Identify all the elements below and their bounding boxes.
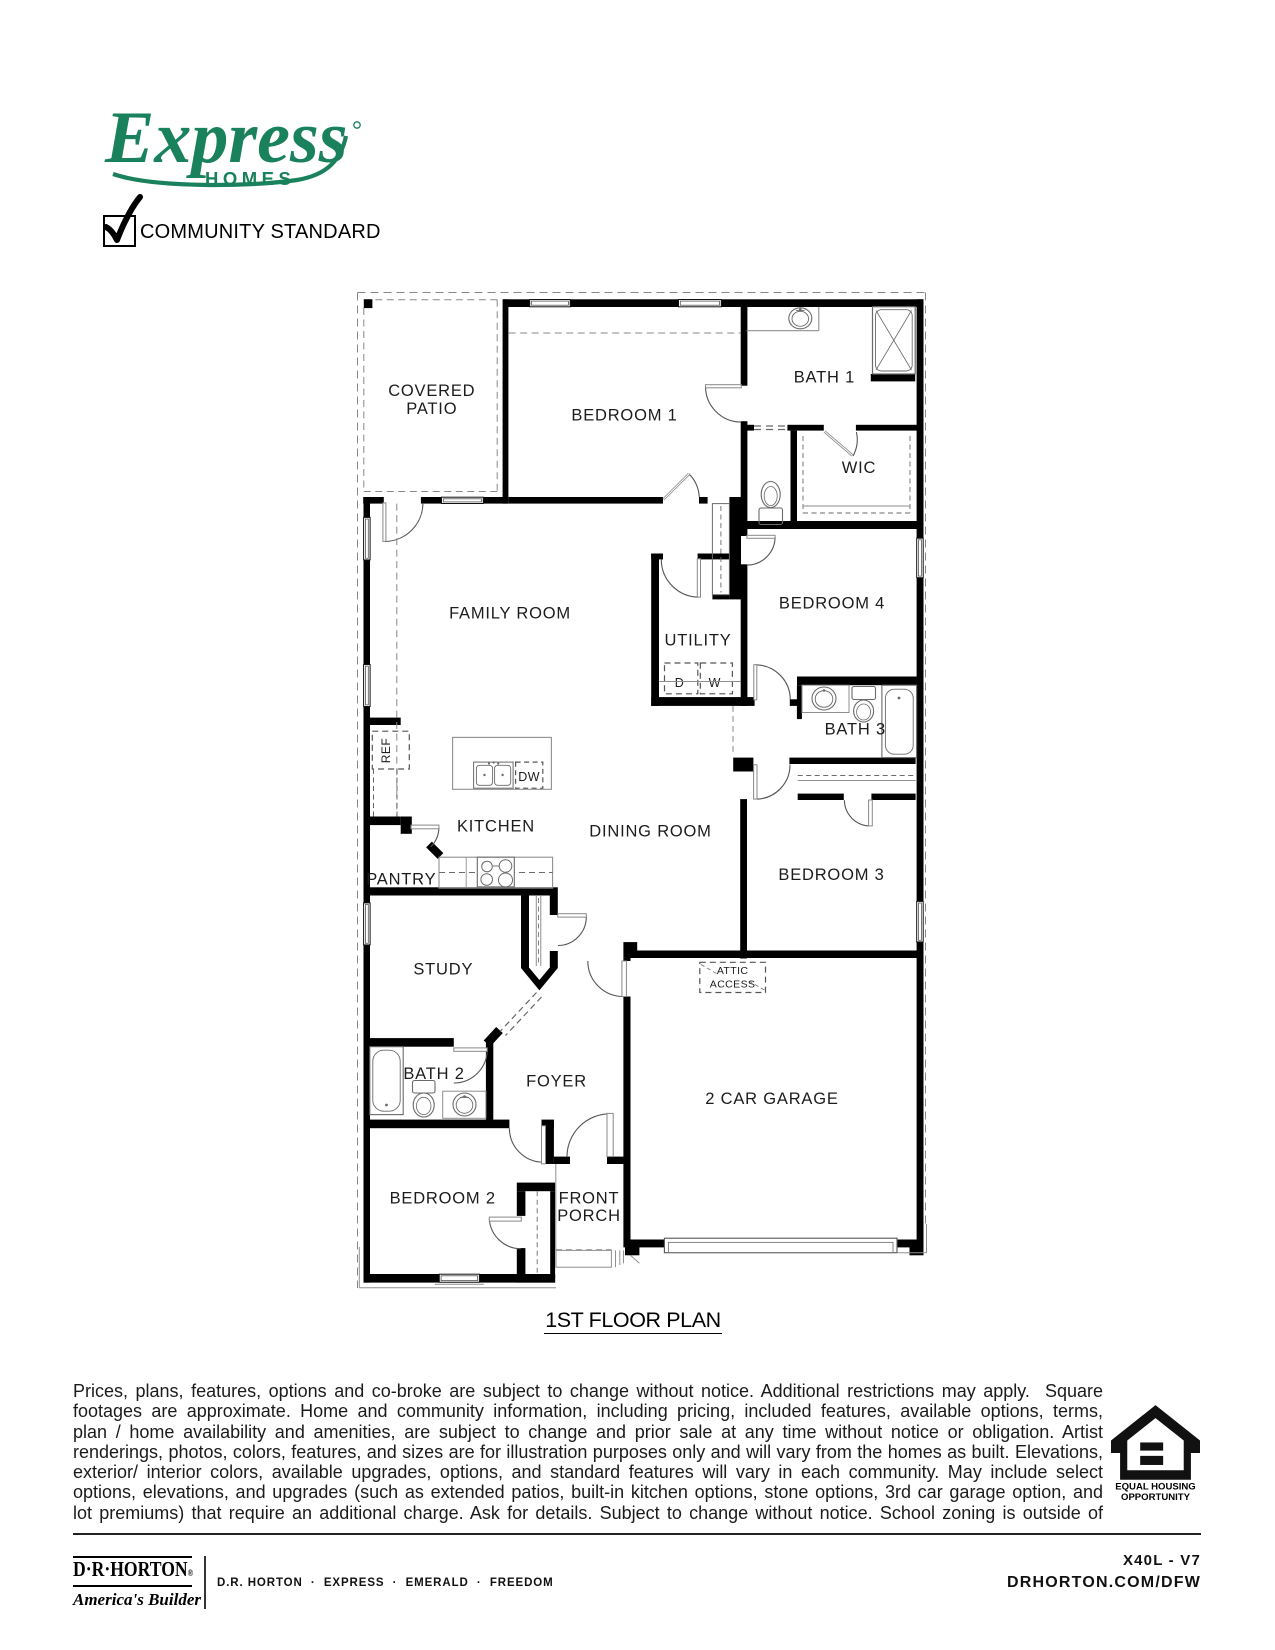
svg-text:PATIO: PATIO <box>406 400 457 418</box>
svg-text:PORCH: PORCH <box>557 1207 621 1225</box>
svg-text:STUDY: STUDY <box>413 961 473 979</box>
svg-text:D: D <box>675 676 685 690</box>
svg-text:WIC: WIC <box>842 459 876 477</box>
svg-text:BEDROOM 1: BEDROOM 1 <box>571 407 677 425</box>
svg-text:2 CAR GARAGE: 2 CAR GARAGE <box>705 1090 838 1108</box>
svg-text:DW: DW <box>518 770 540 784</box>
svg-text:BATH 3: BATH 3 <box>825 721 886 739</box>
svg-text:FRONT: FRONT <box>559 1190 620 1208</box>
svg-text:DINING ROOM: DINING ROOM <box>589 822 711 840</box>
svg-text:COVERED: COVERED <box>388 382 475 400</box>
svg-text:W: W <box>709 676 721 690</box>
svg-text:ACCESS: ACCESS <box>710 979 756 991</box>
svg-text:UTILITY: UTILITY <box>664 632 731 650</box>
svg-text:BATH 2: BATH 2 <box>403 1065 464 1083</box>
svg-text:BEDROOM 4: BEDROOM 4 <box>779 595 885 613</box>
svg-text:KITCHEN: KITCHEN <box>457 817 535 835</box>
svg-text:BATH 1: BATH 1 <box>794 369 855 387</box>
svg-text:EQUAL HOUSING: EQUAL HOUSING <box>1115 1481 1195 1492</box>
svg-text:REF: REF <box>379 738 393 764</box>
svg-text:OPPORTUNITY: OPPORTUNITY <box>1121 1492 1191 1502</box>
svg-text:PANTRY: PANTRY <box>366 870 436 888</box>
svg-text:BEDROOM 2: BEDROOM 2 <box>390 1190 496 1208</box>
svg-text:ATTIC: ATTIC <box>717 965 749 977</box>
svg-text:BEDROOM 3: BEDROOM 3 <box>778 866 884 884</box>
svg-text:FOYER: FOYER <box>526 1073 587 1091</box>
svg-text:FAMILY ROOM: FAMILY ROOM <box>449 605 571 623</box>
